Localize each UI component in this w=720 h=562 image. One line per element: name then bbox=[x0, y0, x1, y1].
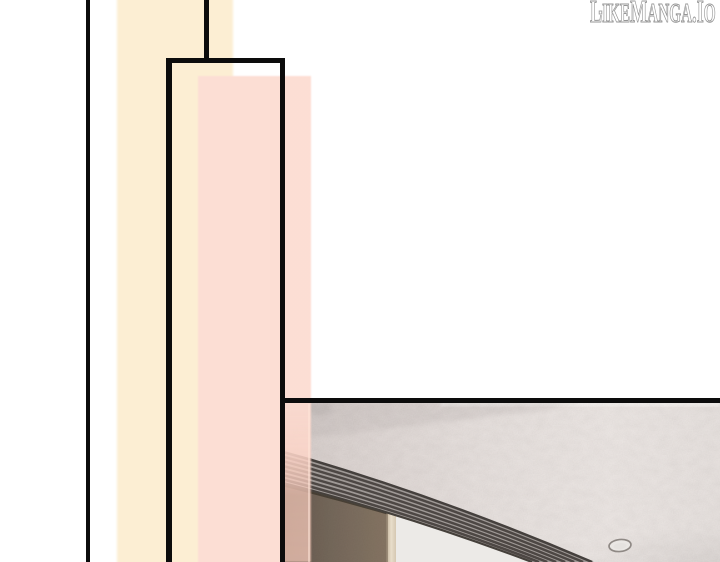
svg-text:LIKEMANGA.IO: LIKEMANGA.IO bbox=[590, 0, 716, 29]
